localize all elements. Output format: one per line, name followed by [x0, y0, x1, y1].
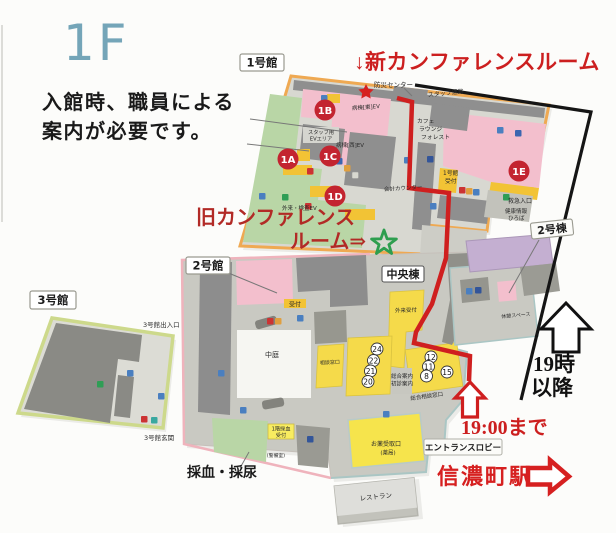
- toilet-icon: [427, 156, 434, 163]
- staff-ev-label-2: EVエリア: [310, 136, 332, 143]
- floor-map-page: 1A 1B 1C 1D 1E 24 22 21 20 12 11 8 15 防災…: [0, 0, 616, 533]
- bosai-center-label: 防災センター: [374, 80, 413, 89]
- general-info-label-1: 総合案内: [391, 372, 413, 380]
- elevator-icon: [218, 370, 225, 377]
- elevator-icon: [297, 315, 304, 322]
- toilet-icon: [307, 436, 314, 443]
- pharmacy-label-2: (薬局): [380, 449, 395, 457]
- post-icon: [141, 416, 148, 423]
- station-right-arrow: [528, 460, 569, 492]
- elevator-icon: [158, 393, 165, 400]
- elevator-icon: [466, 288, 473, 295]
- central-tag-label: 中央棟: [387, 267, 421, 281]
- entrance-lobby-tag-label: エントランスロビー: [425, 443, 501, 454]
- elevator-icon: [383, 411, 390, 418]
- locker-icon: [352, 172, 359, 179]
- old-conference-annotation-line1: 旧カンファレンス: [196, 206, 355, 229]
- after19-label-line2: 以降: [531, 376, 574, 400]
- shop-icon: [344, 165, 351, 172]
- phone-icon: [97, 381, 104, 388]
- general-info-label-2: 初診案内: [391, 380, 413, 388]
- after19-label-line1: 19時: [533, 352, 575, 376]
- badge-1e-label: 1E: [512, 167, 526, 178]
- building-2-west-wall: [198, 262, 232, 415]
- after19-up-arrow: [541, 303, 591, 352]
- elevator-icon: [430, 203, 437, 210]
- floor-map-svg: 1A 1B 1C 1D 1E 24 22 21 20 12 11 8 15 防災…: [0, 0, 616, 533]
- emergency-entrance-label: 救急入口: [508, 197, 532, 205]
- security-room-label: (警備室): [267, 452, 285, 459]
- post-icon: [307, 168, 314, 175]
- room-8: 8: [424, 372, 429, 381]
- room-15: 15: [442, 368, 452, 377]
- old-conference-annotation-line2: ルーム⇒: [290, 231, 366, 253]
- elevator-icon: [259, 193, 266, 200]
- bldg1-reception-label-1: 1号館: [443, 169, 458, 177]
- room-21: 21: [366, 367, 376, 376]
- new-conference-annotation: ↓新カンファレンスルーム: [354, 50, 600, 74]
- cafe-label-1: カフェ: [417, 118, 434, 125]
- pharmacy-label-1: お薬受取口: [371, 440, 401, 448]
- elevator-icon: [240, 407, 247, 414]
- building-2-mid-room: [314, 310, 347, 344]
- health-info-label-2: ひろば: [508, 214, 525, 222]
- elevator-icon: [127, 370, 134, 377]
- phone-icon: [282, 194, 289, 201]
- floor-label: 1F: [63, 14, 130, 72]
- reception-label: 受付: [289, 301, 301, 309]
- elevator-icon: [497, 127, 504, 134]
- consult-small-label: 相談窓口: [320, 358, 340, 366]
- bldg2-tag-label: 2号館: [192, 259, 223, 273]
- blood-draw-green: [212, 418, 268, 462]
- post-icon: [267, 318, 274, 325]
- elevator-icon: [473, 189, 480, 196]
- info-icon: [151, 417, 158, 424]
- cafe-label-3: フォレスト: [421, 134, 450, 141]
- badge-1b-label: 1B: [318, 106, 333, 117]
- ward-west-ev-label: 病棟[西]EV: [336, 141, 364, 149]
- room-20: 20: [363, 377, 373, 386]
- blood-urine-label: 採血・採尿: [187, 464, 257, 481]
- blood-reception-label-2: 受付: [276, 431, 286, 439]
- post-icon: [459, 187, 466, 194]
- courtyard: [237, 330, 311, 398]
- courtyard-label: 中庭: [265, 350, 279, 359]
- entry-note-line2: 案内が必要です。: [41, 119, 212, 143]
- room-22: 22: [369, 356, 379, 365]
- blood-reception-label-1: 1階採血: [272, 425, 291, 433]
- bldg3-exit-top-label: 3号館出入口: [143, 320, 180, 329]
- bldg3-tag-label: 3号館: [37, 293, 68, 307]
- health-info-label-1: 健康情報: [505, 207, 528, 215]
- bldg3-entrance-label: 3号館玄関: [144, 433, 174, 442]
- station-label: 信濃町駅: [437, 464, 533, 489]
- room-24: 24: [372, 345, 382, 354]
- bldg1-tag-label: 1号館: [246, 56, 277, 70]
- shop-icon: [275, 318, 282, 325]
- badge-1d-label: 1D: [327, 192, 342, 203]
- building-2-pink-room: [236, 259, 293, 305]
- bldg1-reception-label-2: 受付: [445, 177, 457, 185]
- until19-label: 19:00まで: [461, 416, 548, 439]
- badge-1a-label: 1A: [281, 155, 296, 166]
- entry-note-line1: 入館時、職員による: [42, 90, 235, 114]
- shop-icon: [466, 188, 473, 195]
- cafe-label-2: ラウンジ: [419, 125, 442, 133]
- toilet-icon: [515, 130, 522, 137]
- staff-ev-label-1: スタッフ用: [308, 128, 334, 136]
- toilet-icon: [475, 287, 482, 294]
- building-3: [18, 318, 173, 428]
- badge-1c-label: 1C: [323, 152, 337, 163]
- building-2-se-room: [296, 425, 330, 468]
